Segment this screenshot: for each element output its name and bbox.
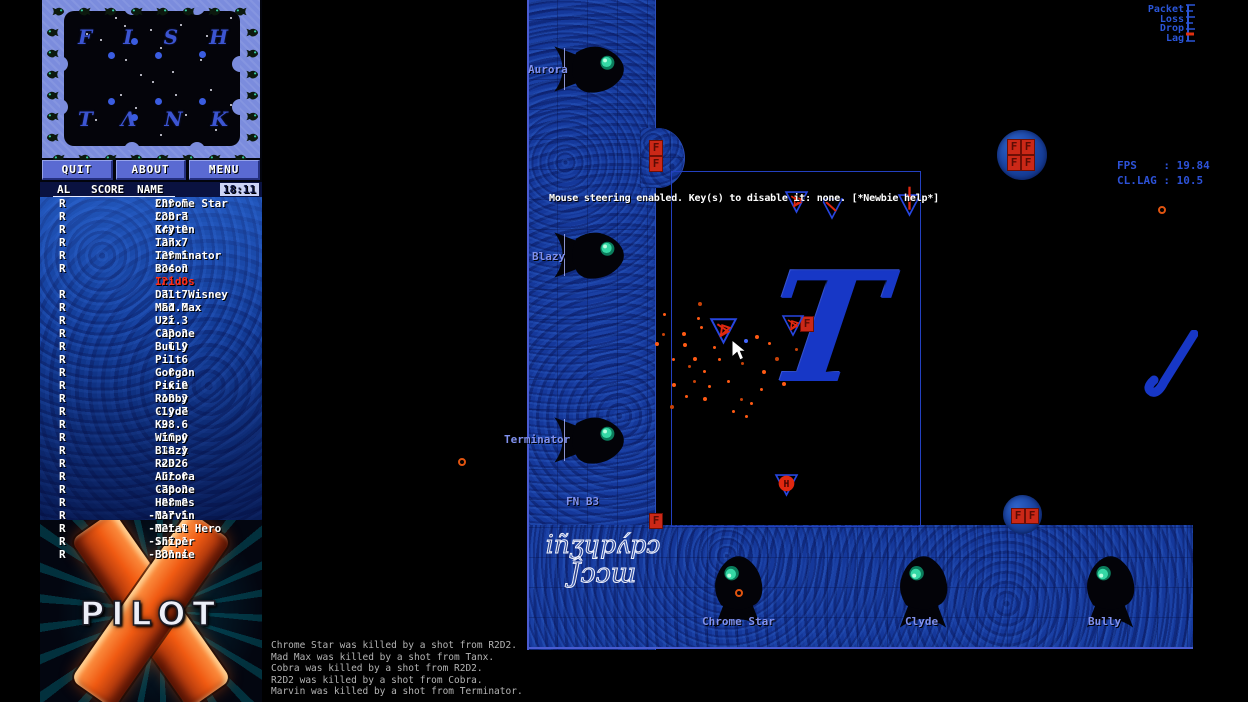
radar-planet [199,98,206,105]
score-flag: R [59,392,66,405]
fish-icon [234,1,247,20]
kill-feed: Chrome Star was killed by a shot from R2… [271,640,571,698]
map-decoration-hook [1142,330,1198,408]
score-flag: R [59,431,66,444]
radar-star [125,59,127,61]
score-row: R143.9Kryten [40,223,262,236]
fish-icon [130,1,143,20]
score-name: Capone [155,483,195,496]
menu-bar: QUIT ABOUT MENU [42,160,260,180]
score-row: R-231.4Bonnie [40,548,262,561]
score-name: Marvin [155,509,195,522]
map-decoration-script: iñʒɥpʌ́pɔ Ĵɔɔɯ [541,531,665,588]
score-table-header: AL SCORE NAME 18:11 [40,182,262,197]
score-flag: R [59,535,66,548]
score-flag: R [59,340,66,353]
score-flag: R [59,548,66,561]
kill-feed-line: Marvin was killed by a shot from Termina… [271,686,571,698]
kill-feed-line: Cobra was killed by a shot from R2D2. [271,663,571,675]
clock: 18:11 [220,183,259,196]
fish-icon [246,85,259,104]
score-name: Dalt Wisney [155,288,228,301]
radar-planet [199,51,206,58]
fish-icon [46,85,59,104]
score-name: R2D2 [155,457,182,470]
net-label-lag: Lag [1148,34,1184,44]
score-flag: R [59,418,66,431]
score-flag: R [59,496,66,509]
quit-button[interactable]: QUIT [42,160,113,180]
radar-star [150,29,152,31]
kill-feed-line: R2D2 was killed by a shot from Cobra. [271,675,571,687]
col-header-score: SCORE [91,183,124,196]
score-row: 121.8Iridos [40,275,262,288]
score-name: Wimpy [155,431,188,444]
score-flag: R [59,288,66,301]
score-row: R32.3Uzi [40,314,262,327]
score-name: Pilt [155,353,182,366]
radar-star [124,25,126,27]
radar-star [172,71,174,73]
fish-icon [104,1,117,20]
score-row: R-157.1Sniper [40,535,262,548]
score-name: Clyde [155,405,188,418]
score-flag: R [59,353,66,366]
ball-ring [458,458,466,466]
score-flag: R [59,210,66,223]
score-name: Metal Hero [155,522,221,535]
score-row: R124.3Boson [40,262,262,275]
score-flag: R [59,262,66,275]
score-flag: R [59,327,66,340]
radar-planet [108,52,115,59]
net-gauge-icon [1185,4,1197,44]
score-row: R6.9Bully [40,340,262,353]
fish-icon [46,106,59,125]
radar-panel: FISH TΛNK [42,0,260,158]
radar-star [120,94,122,96]
radar-star [160,134,162,136]
col-header-name: NAME [137,183,164,196]
fish-icon [156,1,169,20]
radar-star [160,47,162,49]
score-row: R32.2Capone [40,327,262,340]
score-name: Aurora [155,470,195,483]
mouse-cursor [731,339,749,363]
fish-icon [246,127,259,146]
radar-bump [60,56,68,72]
fish-icon [246,64,259,83]
score-flag: R [59,405,66,418]
score-name: Uzi [155,314,175,327]
radar-star [140,74,142,76]
score-row: R-19.7Clyde [40,405,262,418]
radar-bump [232,99,240,115]
score-row: R51.9Mad Max [40,301,262,314]
score-flag: R [59,236,66,249]
radar-map-title-bottom: TΛNK [78,107,228,131]
radar-planet [131,38,138,45]
score-row: R-88.8Hermes [40,496,262,509]
score-name: Gorgon [155,366,195,379]
net-meter-labels: Packet Loss Drop Lag [1148,5,1184,43]
radar-star [210,89,212,91]
hud-message: Mouse steering enabled. Key(s) to disabl… [549,193,939,204]
score-name: Sniper [155,535,195,548]
score-row: R223.7Cobra [40,210,262,223]
score-flag: R [59,197,66,210]
score-row: R229.5Chrome Star [40,197,262,210]
score-list: R229.5Chrome StarR223.7CobraR143.9Kryten… [40,197,262,562]
score-row: R-121.8Metal Hero [40,522,262,535]
score-row: R71.7Dalt Wisney [40,288,262,301]
score-name: Hermes [155,496,195,509]
score-flag: R [59,379,66,392]
radar-planet [108,98,115,105]
fish-icon [182,1,195,20]
map-decoration-letter-t: T [759,252,893,404]
score-row: R1.6Pilt [40,353,262,366]
score-row: R-36.0Wimpy [40,431,262,444]
score-row: R129.5Terminator [40,249,262,262]
score-name: Blazy [155,444,188,457]
xpilot-window: T iñʒɥpʌ́pɔ Ĵɔɔɯ FFFFFFFFFFHAuroraBlazyT… [0,0,1248,702]
col-header-al: AL [57,183,70,196]
radar-star [152,81,154,83]
score-name: Bonnie [155,548,195,561]
score-name: Kryten [155,223,195,236]
fish-icon [246,106,259,125]
score-row: R-38.1Blazy [40,444,262,457]
wall-bottom-edge [527,647,1193,649]
score-flag: R [59,314,66,327]
score-name: Iridos [155,275,195,288]
radar-map-title-top: FISH [78,25,228,49]
radar-star [206,35,208,37]
radar-bump [60,99,68,115]
cl-lag-line: CL.LAG : 10.5 [1117,174,1203,187]
score-flag: R [59,483,66,496]
radar-star [175,94,177,96]
score-row: R137.7Tanx [40,236,262,249]
fish-icon [78,1,91,20]
score-name: Pixie [155,379,188,392]
fish-icon [246,43,259,62]
fish-icon [46,43,59,62]
score-name: Mad Max [155,301,201,314]
score-row: R-45.6R2D2 [40,457,262,470]
fish-icon [52,1,65,20]
fish-icon [208,1,221,20]
score-flag: R [59,249,66,262]
logo-pilot-text: PILOT [48,594,254,633]
score-row: R-78.2Capone [40,483,262,496]
radar-planet [155,98,162,105]
viewport-left-edge [527,0,529,650]
radar-star [86,33,88,35]
score-name: Capone [155,327,195,340]
fish-icon [46,64,59,83]
radar-planet [155,52,162,59]
about-button[interactable]: ABOUT [116,160,187,180]
kill-feed-line: Chrome Star was killed by a shot from R2… [271,640,571,652]
score-flag: R [59,470,66,483]
score-name: Robby [155,392,188,405]
script-line-2: Ĵɔɔɯ [541,559,665,589]
score-flag: R [59,301,66,314]
score-flag: R [59,509,66,522]
radar-star [95,119,97,121]
radar-star [200,59,202,61]
score-row: R-117.5Marvin [40,509,262,522]
sidebar: FISH TΛNK QUIT ABOUT MENU AL SCORE NAME … [40,0,262,702]
radar-star [100,39,102,41]
score-row: R0.3Gorgon [40,366,262,379]
fish-icon [46,127,59,146]
radar-star [135,107,137,109]
fish-icon [246,22,259,41]
radar-star [215,129,217,131]
kill-feed-line: Mad Max was killed by a shot from Tanx. [271,652,571,664]
radar-star [185,114,187,116]
score-row: R-51.0Aurora [40,470,262,483]
score-flag: R [59,457,66,470]
score-name: K9 [155,418,168,431]
score-flag: R [59,223,66,236]
score-flag: R [59,444,66,457]
fps-readout: FPS : 19.84 CL.LAG : 10.5 [1117,158,1210,188]
score-row: R-28.6K9 [40,418,262,431]
script-line-1: iñʒɥpʌ́pɔ [541,531,665,559]
score-name: Terminator [155,249,221,262]
score-name: Chrome Star [155,197,228,210]
radar-star [230,17,232,19]
score-flag: R [59,522,66,535]
score-name: Tanx [155,236,182,249]
score-value: -28.6 [100,418,188,431]
score-name: Bully [155,340,188,353]
score-row: R-6.9Pixie [40,379,262,392]
score-row: R-18.3Robby [40,392,262,405]
fps-line: FPS : 19.84 [1117,159,1210,172]
radar-planet [131,114,138,121]
menu-button[interactable]: MENU [189,160,260,180]
radar-screen: FISH TΛNK [64,11,240,146]
radar-bump [232,56,240,72]
score-flag: R [59,366,66,379]
score-name: Cobra [155,210,188,223]
score-name: Boson [155,262,188,275]
radar-star [180,24,182,26]
fish-icon [46,22,59,41]
